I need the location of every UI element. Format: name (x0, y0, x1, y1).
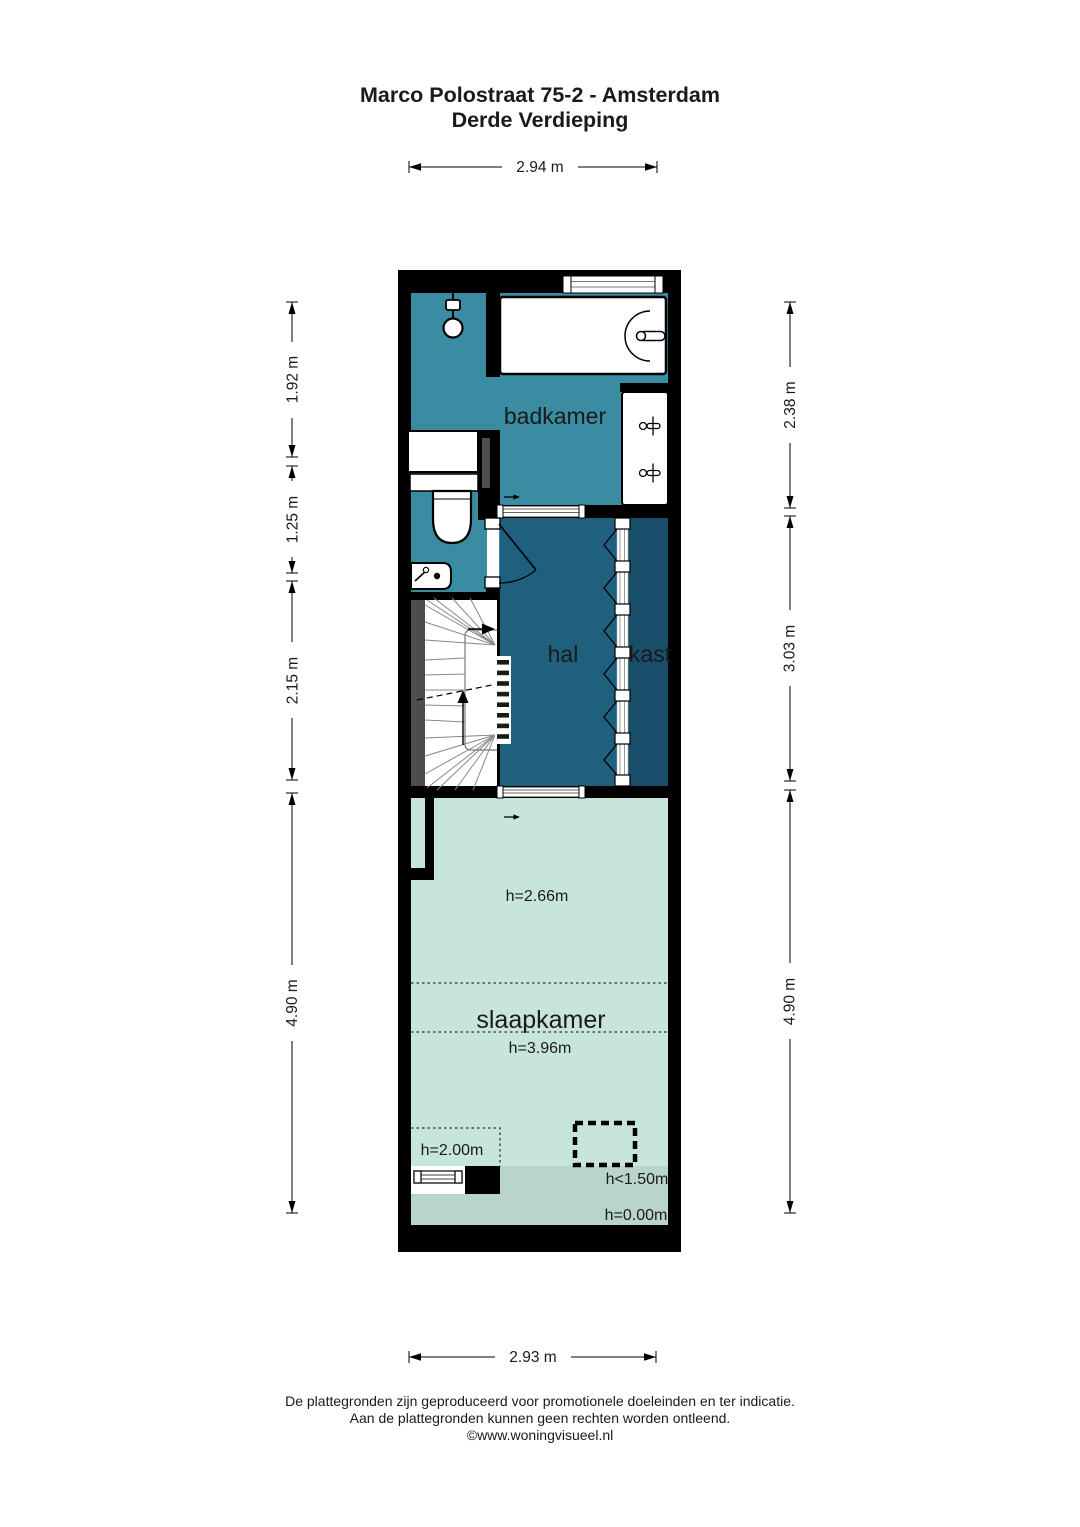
glass-panel-badkamer (497, 505, 585, 518)
footer-copyright: ©www.woningvisueel.nl (467, 1427, 614, 1443)
hand-basin-icon (411, 563, 451, 589)
bathtub-icon (500, 297, 666, 374)
radiator (482, 438, 490, 488)
dimension-top-label: 2.94 m (516, 159, 563, 176)
dimension-top: 2.94 m (409, 155, 657, 179)
footer-line-1: De plattegronden zijn geproduceerd voor … (285, 1393, 795, 1409)
room-slaapkamer (411, 798, 668, 1166)
height-label-slope-low: h<1.50m (606, 1171, 669, 1188)
stair-railing (495, 656, 511, 744)
dimension-bottom: 2.93 m (409, 1345, 656, 1369)
floorplan-page: Marco Polostraat 75-2 - Amsterdam Derde … (0, 0, 1080, 1527)
height-label-slope-left: h=2.00m (421, 1142, 484, 1159)
window-bottom (411, 1166, 465, 1194)
floorplan-figure: Marco Polostraat 75-2 - Amsterdam Derde … (0, 0, 1080, 1527)
height-label-floor: h=0.00m (605, 1207, 668, 1224)
height-label-flat: h=2.66m (506, 888, 569, 905)
dimension-right-label-3: 4.90 m (782, 978, 799, 1025)
dimension-left-label-4: 4.90 m (284, 979, 301, 1026)
footer-line-2: Aan de plattegronden kunnen geen rechten… (350, 1410, 731, 1426)
dimension-bottom-label: 2.93 m (509, 1349, 556, 1366)
washbasin-icon (622, 392, 668, 505)
glass-panel-slaapkamer (497, 786, 585, 798)
dimension-right: 2.38 m 3.03 m 4.90 m (778, 302, 802, 1213)
dimension-left-label-2: 1.25 m (285, 496, 302, 543)
plan-title: Marco Polostraat 75-2 - Amsterdam (360, 83, 720, 107)
dimension-left-label-3: 2.15 m (285, 657, 302, 704)
room-kast-label: kast (629, 641, 672, 667)
dimension-left-label-1: 1.92 m (285, 356, 302, 403)
dimension-left: 1.92 m 1.25 m 2.15 m 4.90 m (280, 302, 304, 1213)
footer-disclaimer: De plattegronden zijn geproduceerd voor … (285, 1393, 795, 1443)
room-hal-label: hal (548, 641, 579, 667)
plan-subtitle: Derde Verdieping (452, 108, 629, 132)
dimension-right-label-2: 3.03 m (782, 625, 799, 672)
floorplan: badkamer hal kast slaapkamer h=2.66m h=3… (398, 270, 681, 1252)
room-slaapkamer-label: slaapkamer (476, 1006, 605, 1034)
window-top (563, 276, 663, 293)
room-badkamer-label: badkamer (504, 403, 607, 429)
height-label-slope-high: h=3.96m (509, 1040, 572, 1057)
dimension-right-label-1: 2.38 m (782, 381, 799, 428)
